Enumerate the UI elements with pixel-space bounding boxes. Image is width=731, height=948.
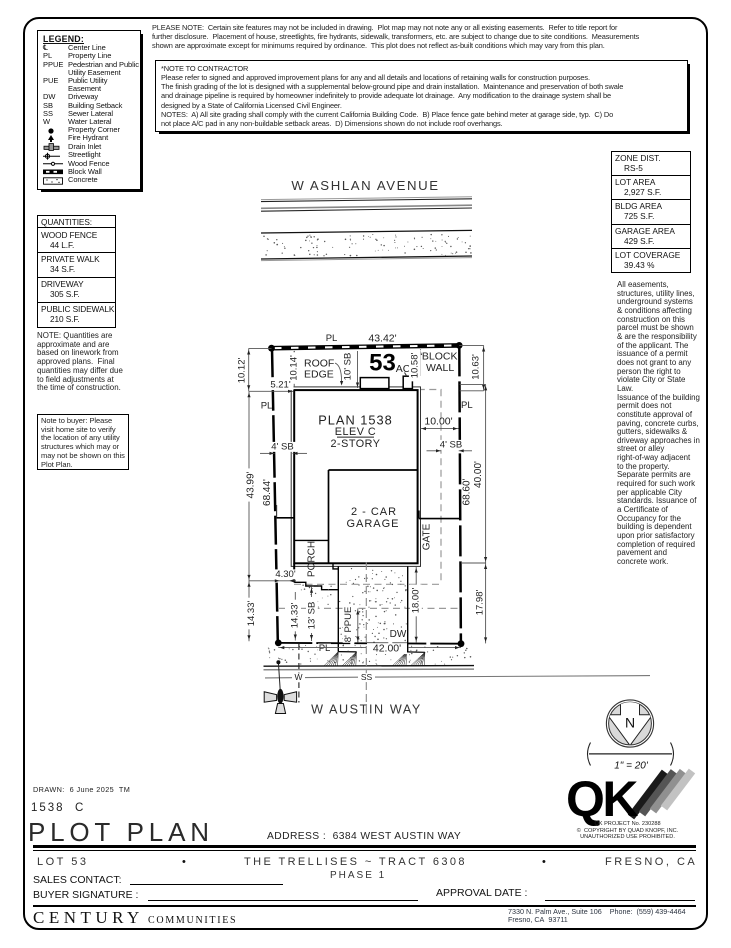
- svg-text:DW: DW: [390, 629, 407, 640]
- svg-text:68.44': 68.44': [262, 479, 273, 506]
- svg-text:10.12': 10.12': [236, 358, 247, 384]
- svg-text:10' SB: 10' SB: [343, 353, 354, 381]
- svg-text:13' SB: 13' SB: [306, 602, 317, 630]
- svg-text:WALL: WALL: [426, 362, 454, 374]
- svg-text:4' SB: 4' SB: [271, 441, 293, 452]
- svg-text:8' PPUE: 8' PPUE: [343, 607, 354, 643]
- svg-text:18.00': 18.00': [410, 588, 421, 614]
- svg-text:4.30': 4.30': [275, 569, 295, 580]
- svg-text:W: W: [294, 672, 302, 682]
- svg-text:PORCH: PORCH: [306, 541, 317, 577]
- svg-text:ELEV C: ELEV C: [335, 426, 376, 438]
- svg-text:GARAGE: GARAGE: [346, 518, 399, 530]
- svg-text:PL: PL: [261, 401, 273, 412]
- svg-text:PL: PL: [461, 400, 473, 411]
- svg-text:40.00': 40.00': [473, 461, 484, 488]
- svg-text:1" = 20': 1" = 20': [614, 761, 649, 772]
- svg-text:EDGE: EDGE: [304, 369, 334, 381]
- svg-text:PL: PL: [326, 333, 338, 344]
- svg-text:43.99': 43.99': [245, 471, 256, 498]
- svg-text:PL: PL: [319, 643, 331, 654]
- svg-text:14.33': 14.33': [290, 603, 301, 629]
- svg-text:14.33': 14.33': [246, 601, 257, 627]
- svg-text:QK: QK: [566, 771, 638, 827]
- svg-text:10.14': 10.14': [288, 355, 299, 381]
- svg-text:10.58': 10.58': [409, 353, 420, 379]
- svg-text:BLOCK: BLOCK: [422, 351, 458, 363]
- svg-text:4' SB: 4' SB: [440, 439, 462, 450]
- svg-text:5.21': 5.21': [270, 380, 290, 391]
- svg-text:W AUSTIN WAY: W AUSTIN WAY: [311, 703, 422, 717]
- svg-text:42.00': 42.00': [373, 642, 401, 654]
- svg-text:10.63': 10.63': [471, 354, 482, 380]
- svg-text:2 - CAR: 2 - CAR: [351, 506, 397, 518]
- svg-text:SS: SS: [361, 672, 373, 682]
- svg-text:W ASHLAN AVENUE: W ASHLAN AVENUE: [291, 178, 439, 193]
- svg-text:53: 53: [369, 350, 396, 377]
- svg-text:2-STORY: 2-STORY: [331, 438, 381, 450]
- svg-text:N: N: [625, 715, 635, 731]
- svg-text:10.00': 10.00': [424, 416, 452, 428]
- svg-text:17.98': 17.98': [475, 590, 486, 616]
- svg-text:68.60': 68.60': [461, 478, 472, 505]
- svg-text:43.42': 43.42': [368, 333, 396, 345]
- svg-text:GATE: GATE: [421, 523, 432, 550]
